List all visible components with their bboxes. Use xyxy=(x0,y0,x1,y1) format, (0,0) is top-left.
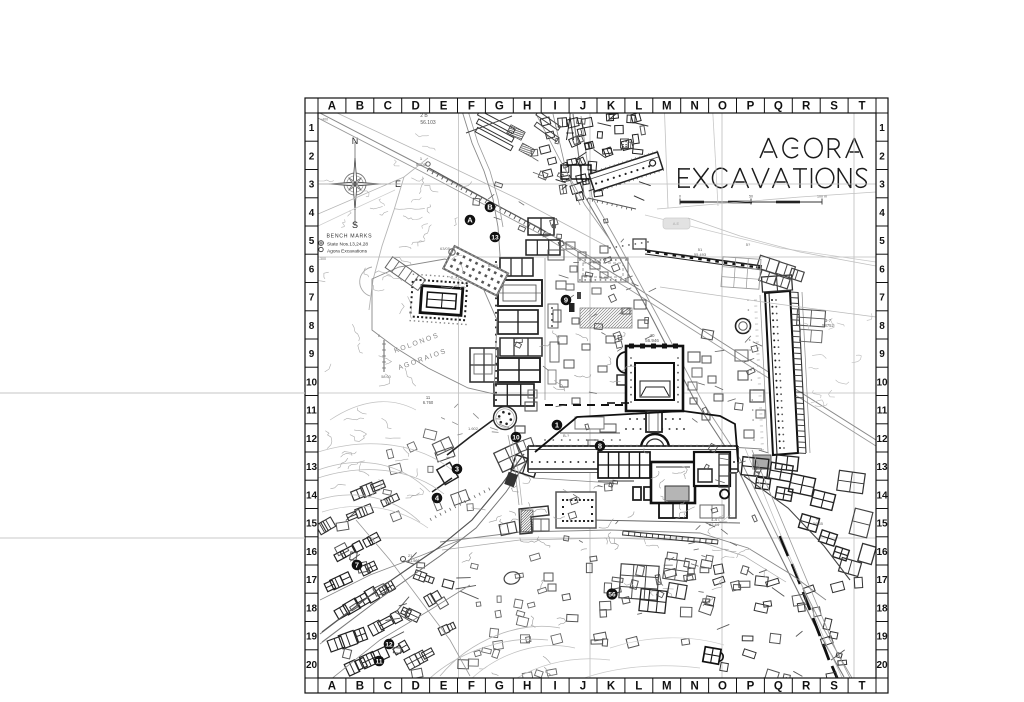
svg-text:13: 13 xyxy=(491,234,499,241)
svg-text:O: O xyxy=(718,101,727,113)
svg-text:A: A xyxy=(328,101,336,113)
svg-text:21: 21 xyxy=(408,554,412,558)
svg-text:11: 11 xyxy=(306,406,317,417)
svg-text:3: 3 xyxy=(309,180,315,191)
svg-text:15: 15 xyxy=(876,519,888,530)
svg-text:14: 14 xyxy=(306,490,318,501)
svg-text:19: 19 xyxy=(306,632,318,643)
svg-text:5?: 5? xyxy=(746,242,751,247)
svg-text:9: 9 xyxy=(309,349,315,360)
svg-text:B: B xyxy=(487,202,493,211)
svg-text:A G O R A I O S: A G O R A I O S xyxy=(397,348,446,372)
svg-text:9: 9 xyxy=(564,295,568,304)
svg-text:Q: Q xyxy=(774,101,783,113)
svg-text:1: 1 xyxy=(309,123,315,134)
svg-text:12: 12 xyxy=(876,434,888,445)
svg-text:20: 20 xyxy=(306,660,318,671)
svg-text:5: 5 xyxy=(879,236,885,247)
svg-text:11: 11 xyxy=(376,658,383,665)
svg-text:R: R xyxy=(802,101,811,113)
svg-text:Q: Q xyxy=(774,681,783,693)
svg-text:10: 10 xyxy=(306,377,318,388)
svg-text:R: R xyxy=(802,681,811,693)
svg-text:12: 12 xyxy=(306,434,318,445)
svg-text:A: A xyxy=(467,215,473,224)
svg-text:J: J xyxy=(580,101,586,113)
svg-text:B-?: B-? xyxy=(563,433,570,438)
svg-text:63.75: 63.75 xyxy=(488,263,499,268)
svg-text:3: 3 xyxy=(879,180,885,191)
svg-text:G: G xyxy=(495,101,504,113)
svg-text:Agora Excavations: Agora Excavations xyxy=(327,248,368,254)
svg-text:5: 5 xyxy=(309,236,315,247)
svg-text:N: N xyxy=(690,101,698,113)
svg-text:E: E xyxy=(440,681,448,693)
svg-text:P: P xyxy=(747,681,755,693)
svg-text:9: 9 xyxy=(879,349,885,360)
svg-text:1: 1 xyxy=(879,123,885,134)
svg-text:S: S xyxy=(830,101,838,113)
svg-text:7: 7 xyxy=(879,293,885,304)
svg-text:17: 17 xyxy=(876,575,888,586)
svg-text:11: 11 xyxy=(877,406,888,417)
svg-text:0: 0 xyxy=(679,195,681,199)
svg-text:14: 14 xyxy=(876,490,888,501)
svg-text:4: 4 xyxy=(879,208,885,219)
svg-text:D: D xyxy=(411,101,419,113)
svg-text:S: S xyxy=(830,681,838,693)
svg-text:16: 16 xyxy=(876,547,888,558)
svg-text:C: C xyxy=(384,101,392,113)
svg-text:N: N xyxy=(690,681,698,693)
svg-text:I: I xyxy=(553,101,556,113)
svg-text:P: P xyxy=(747,101,755,113)
svg-text:H: H xyxy=(523,101,531,113)
svg-text:G: G xyxy=(495,681,504,693)
svg-text:L: L xyxy=(635,101,642,113)
svg-text:18: 18 xyxy=(306,603,318,614)
svg-text:20: 20 xyxy=(876,660,888,671)
svg-text:B: B xyxy=(356,681,364,693)
svg-text:12: 12 xyxy=(385,641,393,648)
svg-text:13: 13 xyxy=(306,462,318,473)
svg-text:M: M xyxy=(662,681,672,693)
svg-text:7: 7 xyxy=(309,293,315,304)
svg-text:16: 16 xyxy=(306,547,318,558)
svg-text:17: 17 xyxy=(306,575,318,586)
svg-text:4: 4 xyxy=(309,208,315,219)
svg-text:H: H xyxy=(523,681,531,693)
svg-text:L: L xyxy=(635,681,642,693)
svg-text:56.946: 56.946 xyxy=(645,338,659,343)
svg-text:10: 10 xyxy=(512,434,520,441)
svg-text:F: F xyxy=(468,101,475,113)
svg-text:J: J xyxy=(580,681,586,693)
svg-text:F: F xyxy=(468,681,475,693)
svg-text:T: T xyxy=(858,101,865,113)
svg-text:6: 6 xyxy=(309,264,315,275)
svg-text:55.493: 55.493 xyxy=(694,252,707,257)
svg-text:15: 15 xyxy=(306,519,318,530)
svg-text:-300: -300 xyxy=(319,257,326,261)
svg-text:56: 56 xyxy=(608,591,616,598)
svg-text:A: A xyxy=(328,681,336,693)
svg-text:T: T xyxy=(858,681,865,693)
svg-text:8: 8 xyxy=(879,321,885,332)
svg-text:K: K xyxy=(607,681,616,693)
svg-text:B: B xyxy=(356,101,364,113)
svg-text:8: 8 xyxy=(309,321,315,332)
svg-text:1.602: 1.602 xyxy=(468,426,479,431)
svg-text:6.760: 6.760 xyxy=(423,400,434,405)
svg-text:State Nos.13,24,28: State Nos.13,24,28 xyxy=(327,241,368,247)
svg-text:2: 2 xyxy=(309,151,315,162)
svg-text:7: 7 xyxy=(355,560,359,569)
svg-text:1: 1 xyxy=(555,420,559,429)
svg-text:I: I xyxy=(553,681,556,693)
svg-text:2: 2 xyxy=(879,151,885,162)
svg-text:C: C xyxy=(384,681,392,693)
svg-text:3: 3 xyxy=(455,464,459,473)
svg-text:2 B: 2 B xyxy=(420,113,428,119)
svg-text:19: 19 xyxy=(876,632,888,643)
svg-text:8: 8 xyxy=(598,441,602,450)
svg-text:S: S xyxy=(352,220,358,230)
svg-text:50: 50 xyxy=(749,195,753,199)
svg-text:6: 6 xyxy=(879,264,885,275)
svg-text:K: K xyxy=(607,101,616,113)
svg-text:10: 10 xyxy=(876,377,888,388)
svg-text:O: O xyxy=(718,681,727,693)
svg-text:A.E: A.E xyxy=(673,221,680,226)
svg-text:13: 13 xyxy=(876,462,888,473)
svg-text:M: M xyxy=(662,101,672,113)
svg-text:61.566: 61.566 xyxy=(408,559,420,563)
svg-text:63/05: 63/05 xyxy=(440,246,451,251)
svg-text:D: D xyxy=(411,681,419,693)
svg-text:BENCH MARKS: BENCH MARKS xyxy=(327,234,373,240)
svg-text:1: 1 xyxy=(420,156,423,161)
svg-text:E: E xyxy=(440,101,448,113)
svg-text:56.103: 56.103 xyxy=(420,120,436,126)
svg-text:18: 18 xyxy=(876,603,888,614)
